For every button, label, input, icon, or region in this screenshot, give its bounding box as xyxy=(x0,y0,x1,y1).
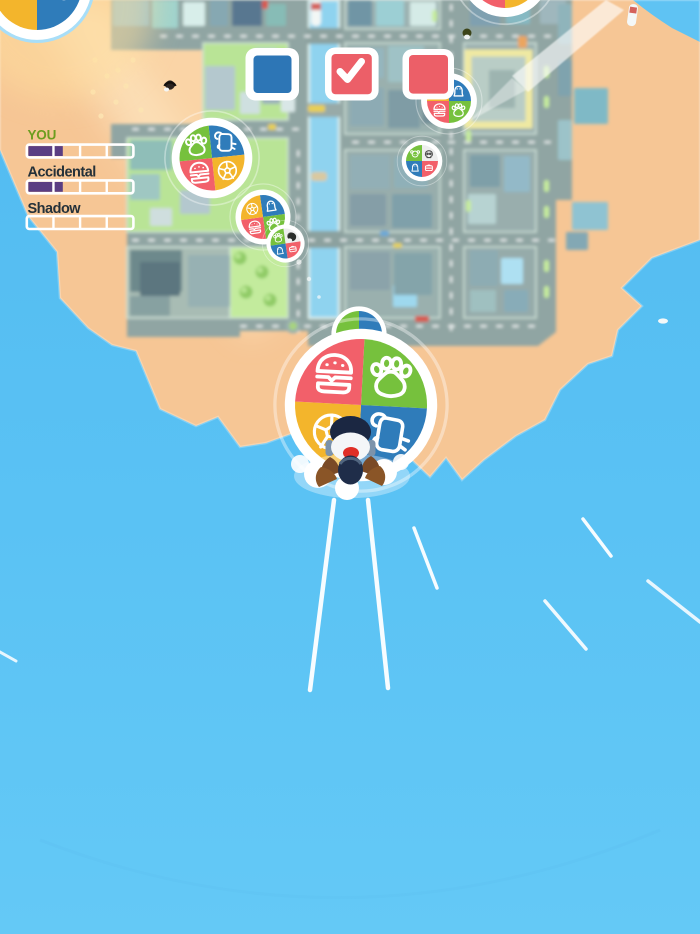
svg-text:YOU: YOU xyxy=(28,128,57,143)
svg-text:Shadow: Shadow xyxy=(28,201,82,217)
svg-text:Accidental: Accidental xyxy=(28,165,96,181)
